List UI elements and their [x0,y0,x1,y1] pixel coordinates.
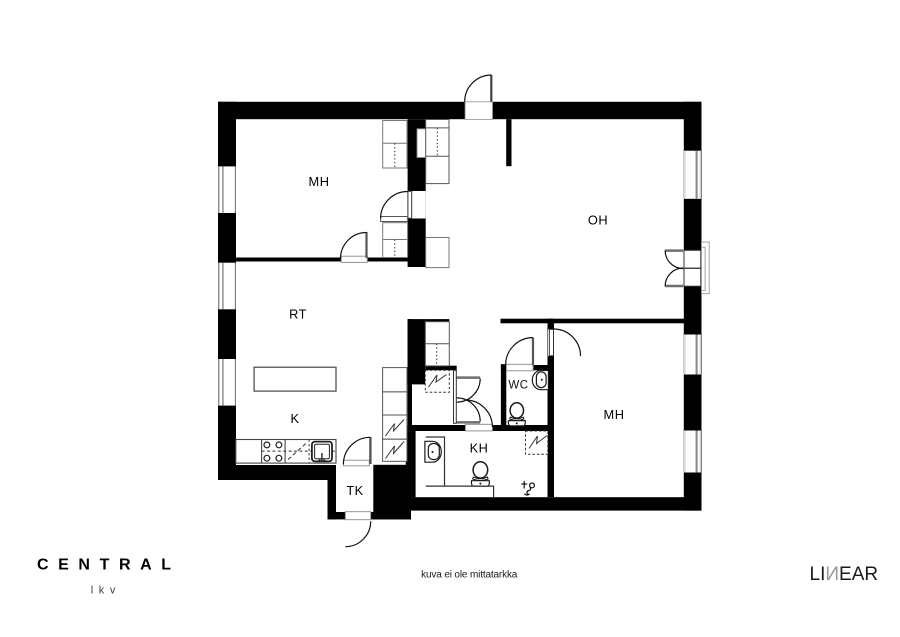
svg-text:MH: MH [604,407,625,422]
svg-text:CENTRAL: CENTRAL [37,557,181,574]
svg-text:kuva ei ole mittatarkka: kuva ei ole mittatarkka [421,569,518,580]
svg-text:lkv: lkv [91,585,121,597]
svg-text:K: K [290,411,299,426]
svg-text:RT: RT [289,307,307,322]
svg-text:KH: KH [470,441,489,456]
svg-text:WC: WC [508,380,528,392]
svg-text:TK: TK [346,483,363,498]
svg-text:OH: OH [588,213,608,228]
svg-text:LIИEAR: LIИEAR [810,564,879,585]
svg-text:MH: MH [309,174,330,189]
